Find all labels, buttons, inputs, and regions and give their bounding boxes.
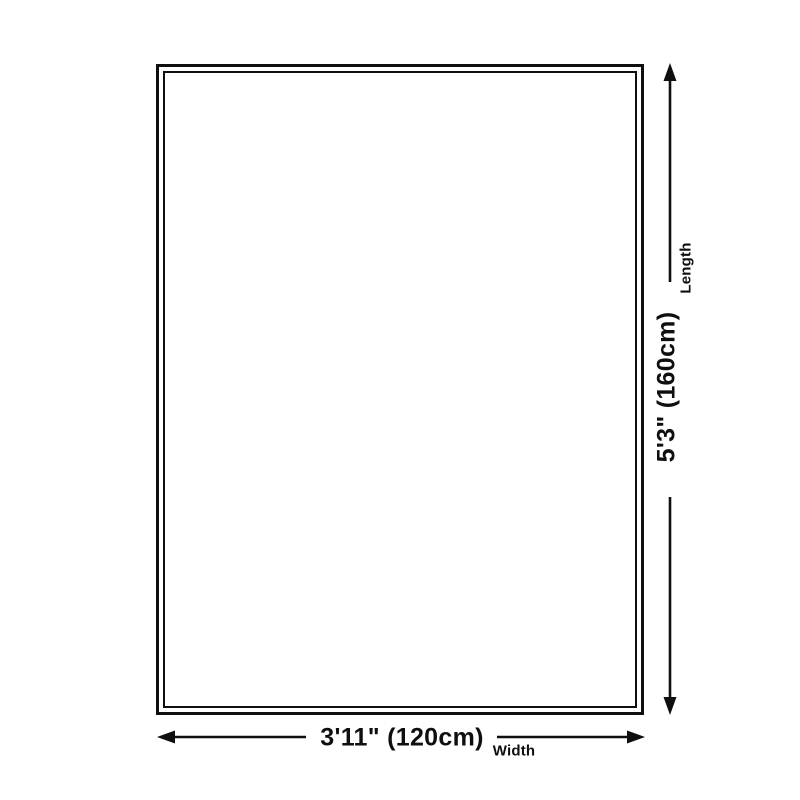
length-axis-label: Length — [678, 242, 695, 293]
length-value-label: 5'3" (160cm) — [653, 312, 682, 463]
rug-outline — [156, 64, 644, 715]
rug-size-diagram: 5'3" (160cm) Length 3'11" (120cm) Width — [0, 0, 800, 800]
width-axis-label: Width — [493, 743, 536, 760]
arrow-down-icon — [664, 697, 677, 715]
width-value-label: 3'11" (120cm) — [320, 724, 483, 753]
rug-inner-border — [163, 71, 637, 708]
arrow-left-icon — [157, 731, 175, 744]
arrow-right-icon — [627, 731, 645, 744]
arrow-up-icon — [664, 63, 677, 81]
